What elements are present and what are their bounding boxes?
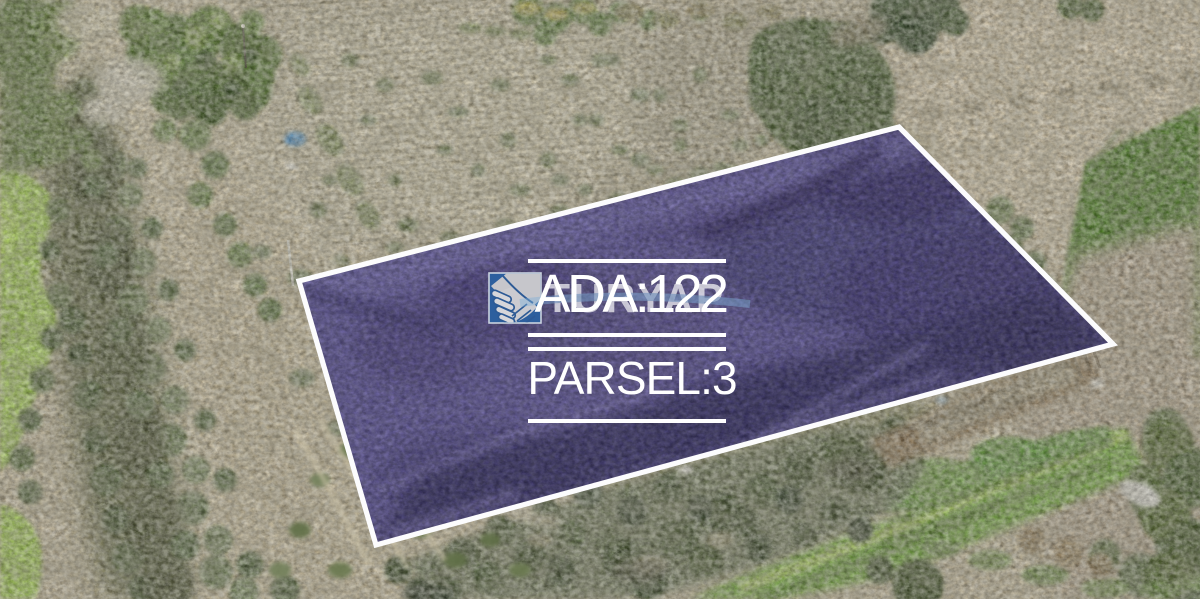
svg-text:PARSEL:3: PARSEL:3 bbox=[527, 352, 736, 404]
svg-text:ADA:122: ADA:122 bbox=[535, 264, 727, 324]
